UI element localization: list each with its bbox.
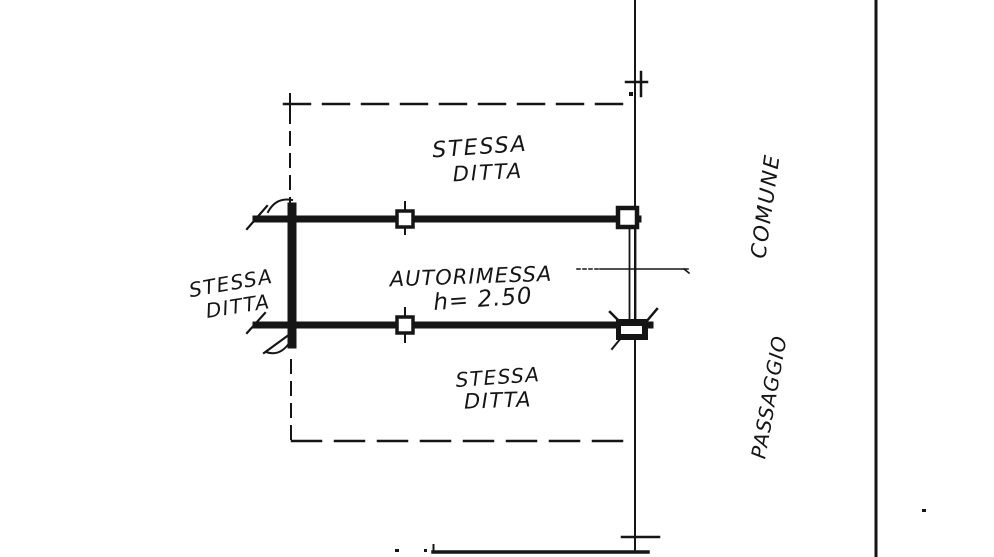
pillar-bottom-middle: [397, 308, 413, 342]
garage-right-wall-double-line: [630, 226, 636, 320]
survey-marker-top: [626, 72, 647, 96]
cadastral-plan-scan: STESSA DITTA AUTORIMESSA h= 2.50 STESSA …: [0, 0, 994, 557]
label-adjacent-bottom-stessa: STESSA: [455, 364, 541, 390]
label-adjacent-bottom-ditta: DITTA: [464, 389, 533, 412]
label-adjacent-top-ditta: DITTA: [452, 161, 523, 186]
pillar-bottom-right: [610, 309, 657, 349]
pillar-top-middle: [397, 202, 413, 234]
reference-line: [577, 269, 689, 273]
pillar-top-right: [618, 208, 637, 227]
scan-specks: [395, 509, 926, 552]
bottom-court-line: [433, 545, 648, 552]
